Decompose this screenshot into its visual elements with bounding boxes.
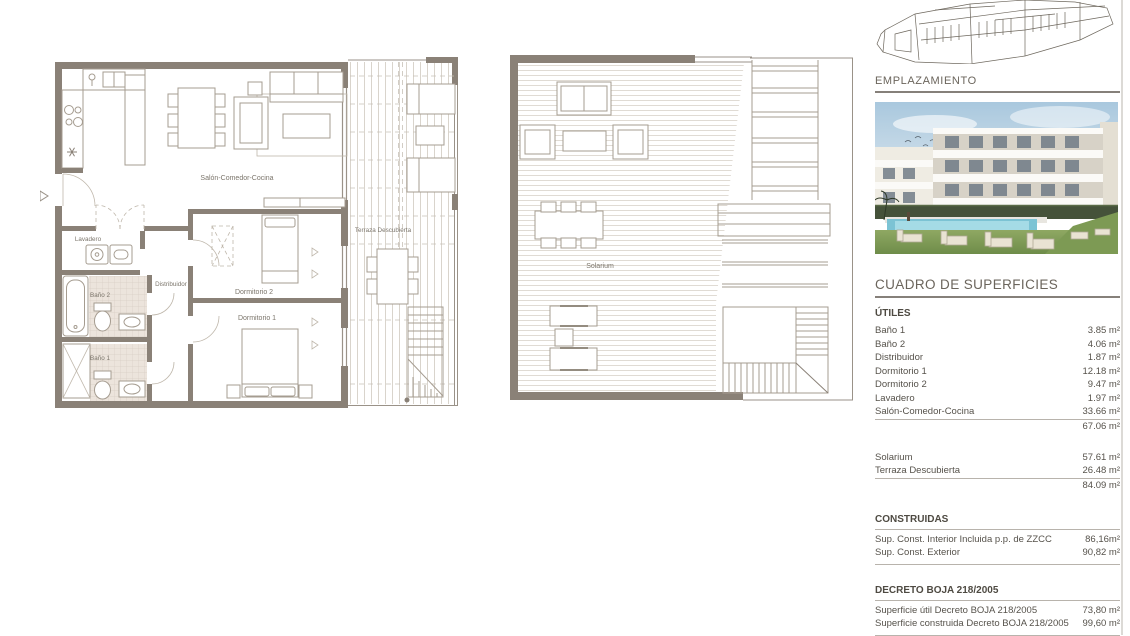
surface-row: Distribuidor 1.87 m² — [875, 351, 1120, 365]
decreto-title: DECRETO BOJA 218/2005 — [875, 585, 1120, 601]
bathroom-2: Baño 2 — [63, 276, 147, 337]
surface-row: Solarium 57.61 m² — [875, 451, 1120, 465]
floor-plan-main: Terraza Descubierta — [40, 48, 500, 420]
bathroom-1: Baño 1 — [63, 344, 147, 401]
decreto-section: DECRETO BOJA 218/2005 Superficie útil De… — [875, 585, 1120, 636]
hob-icon — [65, 106, 83, 127]
surface-row: Baño 2 4.06 m² — [875, 338, 1120, 352]
nightstand — [299, 385, 312, 398]
dormitorio2-label: Dormitorio 2 — [235, 289, 273, 296]
outdoor-coffee-table — [563, 131, 606, 151]
terrace-label: Terraza Descubierta — [355, 227, 412, 234]
surface-row: Salón-Comedor-Cocina 33.66 m² — [875, 405, 1120, 419]
utiles-total-row: 67.06 m² — [875, 419, 1120, 434]
sink — [119, 314, 145, 330]
complex-photo — [875, 102, 1118, 254]
surface-row: Lavadero 1.97 m² — [875, 392, 1120, 406]
exterior-total-row: 84.09 m² — [875, 478, 1120, 493]
page-edge-line — [1121, 0, 1123, 635]
nightstand — [227, 385, 240, 398]
dryer-icon — [110, 245, 132, 264]
construidas-title: CONSTRUIDAS — [875, 514, 1120, 530]
living-room — [234, 72, 347, 207]
armchair — [234, 97, 268, 149]
surface-row: Sup. Const. Exterior 90,82 m² — [875, 546, 1120, 560]
washer-icon — [86, 245, 108, 264]
surface-row: Superficie útil Decreto BOJA 218/2005 73… — [875, 604, 1120, 618]
salon-label: Salón-Comedor-Cocina — [200, 175, 273, 182]
double-doors — [96, 205, 144, 229]
faucet-icon — [89, 74, 95, 80]
solarium-dining-table — [535, 202, 603, 248]
kitchen — [62, 69, 145, 173]
sideboard — [264, 198, 345, 207]
emplazamiento-title: EMPLAZAMIENTO — [875, 75, 1120, 93]
entry-arrow-icon — [40, 191, 48, 201]
utiles-section: ÚTILES Baño 1 3.85 m² Baño 2 4.06 m² Dis… — [875, 308, 1120, 493]
entry-door — [63, 174, 95, 206]
surface-row: Terraza Descubierta 26.48 m² — [875, 464, 1120, 478]
floor-plan-solarium: Solarium — [495, 45, 865, 410]
surfaces-title: CUADRO DE SUPERFICIES — [875, 277, 1120, 298]
terrace: Terraza Descubierta — [348, 57, 458, 406]
dormitorio1-label: Dormitorio 1 — [238, 315, 276, 322]
bedroom-2: Dormitorio 2 — [212, 215, 298, 296]
freezer-icon — [67, 148, 77, 157]
sofa — [270, 72, 343, 102]
solarium-label: Solarium — [586, 263, 614, 270]
bano2-label: Baño 2 — [90, 292, 110, 299]
surface-row: Dormitorio 1 12.18 m² — [875, 365, 1120, 379]
construidas-section: CONSTRUIDAS Sup. Const. Interior Incluid… — [875, 514, 1120, 565]
laundry-room: Lavadero — [75, 236, 132, 264]
hedge — [875, 205, 1118, 219]
lavadero-label: Lavadero — [75, 236, 102, 243]
sink — [119, 381, 145, 397]
single-bed — [262, 215, 298, 283]
building-sketch-illustration — [875, 0, 1120, 64]
distribuidor-label: Distribuidor — [155, 281, 187, 288]
toilet — [94, 303, 111, 311]
toilet — [94, 371, 111, 379]
surface-row: Dormitorio 2 9.47 m² — [875, 378, 1120, 392]
info-sidebar: EMPLAZAMIENTO — [875, 0, 1120, 636]
surface-row: Sup. Const. Interior Incluida p.p. de ZZ… — [875, 533, 1120, 547]
surface-row: Superficie construida Decreto BOJA 218/2… — [875, 617, 1120, 631]
hallway: Distribuidor — [152, 240, 219, 384]
utiles-title: ÚTILES — [875, 308, 1120, 319]
dining-table — [168, 88, 225, 148]
person — [907, 212, 910, 221]
surface-row: Baño 1 3.85 m² — [875, 324, 1120, 338]
terrace-drain — [405, 398, 410, 403]
bedroom-1: Dormitorio 1 — [227, 315, 312, 398]
coffee-table — [283, 114, 330, 138]
bano1-label: Baño 1 — [90, 355, 110, 362]
